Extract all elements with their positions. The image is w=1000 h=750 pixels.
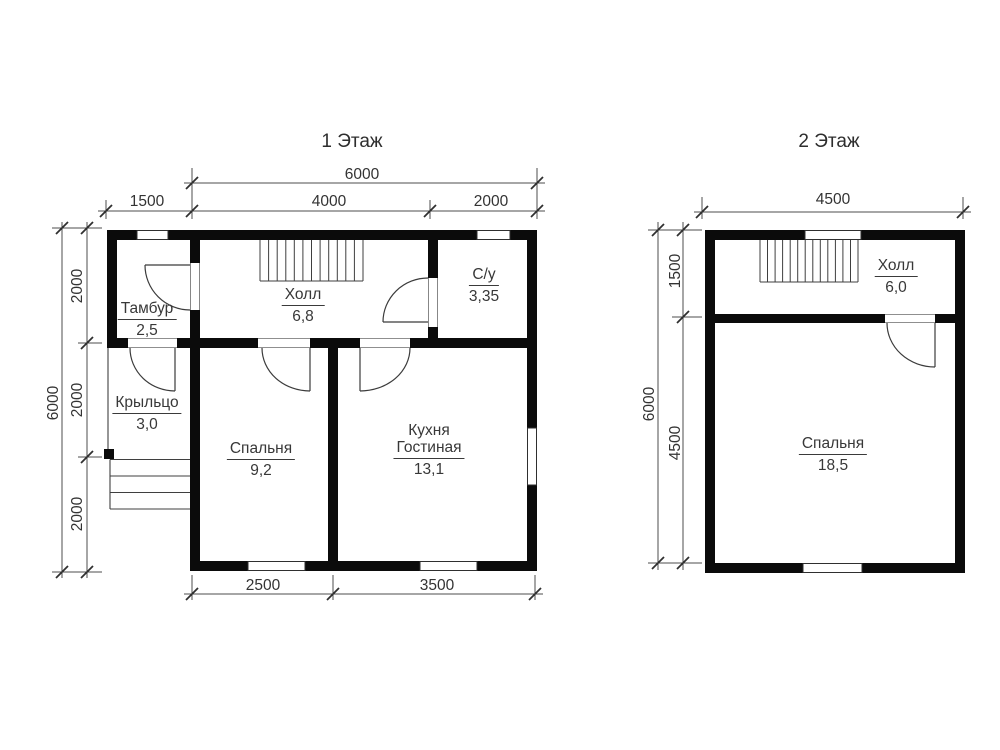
room-name: Крыльцо <box>112 394 181 414</box>
room-area: 13,1 <box>393 459 464 478</box>
room-area: 6,8 <box>282 306 325 325</box>
floor2-dimension-ticks <box>652 206 969 569</box>
room-label-kitchen: КухняГостиная 13,1 <box>393 422 464 478</box>
room-area: 3,35 <box>469 286 499 305</box>
floorplan-page: 1 Этаж 2 Этаж 6000 1500 4000 2000 6000 2… <box>0 0 1000 750</box>
floor2-doors <box>887 323 935 367</box>
room-label-su: С/у 3,35 <box>469 266 499 305</box>
dim-f1-bottom-left: 2500 <box>246 577 280 595</box>
dim-f1-left-seg2: 2000 <box>69 383 87 417</box>
room-area: 3,0 <box>112 414 181 433</box>
dim-f2-left-total: 6000 <box>641 387 659 421</box>
room-name: Тамбур <box>118 300 177 320</box>
floor1-dimension-ticks <box>56 177 543 600</box>
floor1-title: 1 Этаж <box>321 131 382 153</box>
room-name: КухняГостиная <box>393 422 464 459</box>
dim-f1-left-seg1: 2000 <box>69 269 87 303</box>
floor2-dimension-lines <box>648 197 971 570</box>
room-area: 6,0 <box>875 277 918 296</box>
room-area: 2,5 <box>118 320 177 339</box>
floorplan-drawing <box>0 0 1000 750</box>
dim-f1-left-total: 6000 <box>45 386 63 420</box>
room-name: Спальня <box>799 435 867 455</box>
dim-f2-left-seg1: 1500 <box>667 254 685 288</box>
floor2-title: 2 Этаж <box>798 131 859 153</box>
dim-f1-bottom-right: 3500 <box>420 577 454 595</box>
dim-f1-top-right: 2000 <box>474 193 508 211</box>
dim-f2-left-seg2: 4500 <box>667 426 685 460</box>
floor2-stairs <box>760 240 858 282</box>
room-name: Спальня <box>227 440 295 460</box>
room-area: 9,2 <box>227 460 295 479</box>
room-label-hall-f1: Холл 6,8 <box>282 286 325 325</box>
dim-f1-top-left: 1500 <box>130 193 164 211</box>
dim-f1-top-mid: 4000 <box>312 193 346 211</box>
room-label-porch: Крыльцо 3,0 <box>112 394 181 433</box>
floor1-stairs <box>260 240 363 281</box>
room-label-bedroom-f1: Спальня 9,2 <box>227 440 295 479</box>
dim-f1-top-total: 6000 <box>345 166 379 184</box>
room-label-bedroom-f2: Спальня 18,5 <box>799 435 867 474</box>
dim-f2-top-total: 4500 <box>816 191 850 209</box>
room-area: 18,5 <box>799 455 867 474</box>
room-label-hall-f2: Холл 6,0 <box>875 257 918 296</box>
dim-f1-left-seg3: 2000 <box>69 497 87 531</box>
room-label-tambur: Тамбур 2,5 <box>118 300 177 339</box>
room-name: С/у <box>469 266 498 286</box>
room-name: Холл <box>282 286 325 306</box>
room-name: Холл <box>875 257 918 277</box>
floor2-door-openings <box>885 315 935 323</box>
